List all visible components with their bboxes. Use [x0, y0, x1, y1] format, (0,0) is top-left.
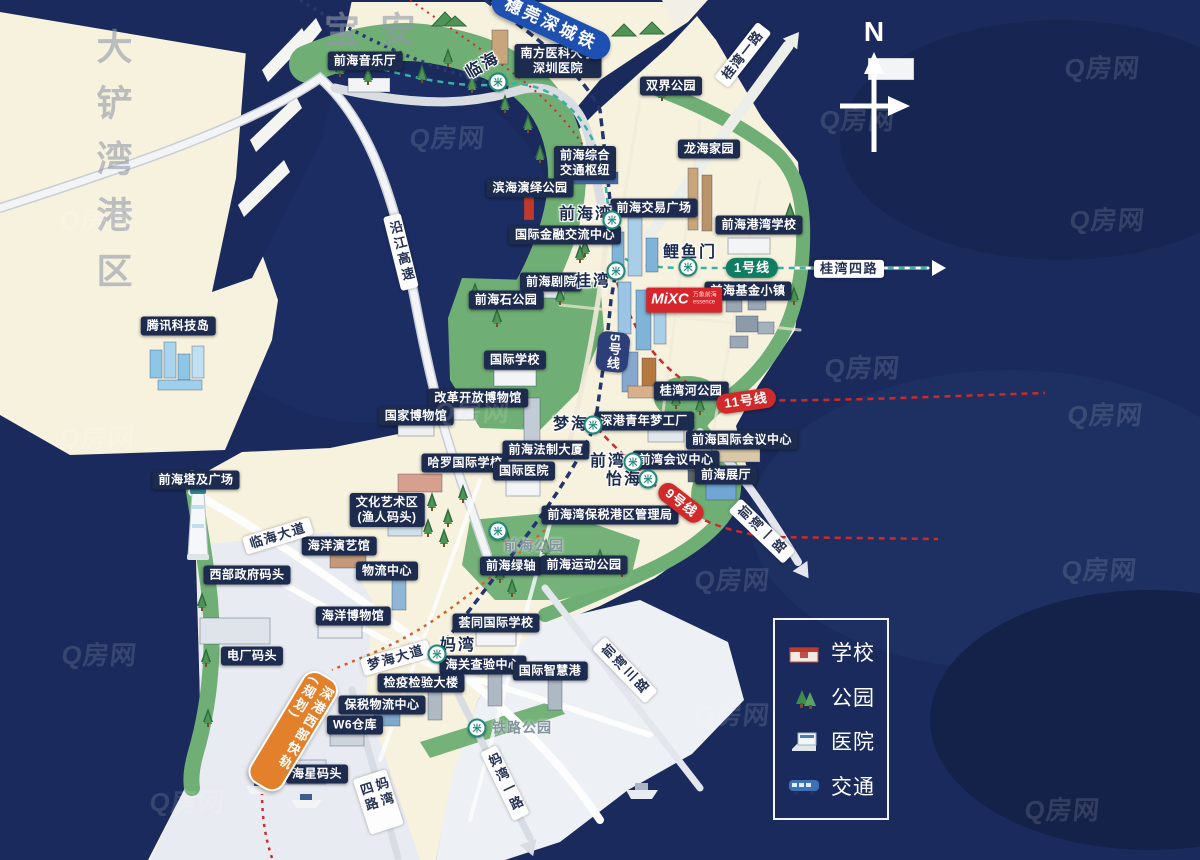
- metro-station-icon: 米: [603, 211, 622, 230]
- compass-n-label: N: [834, 16, 914, 48]
- poi-label: 国家博物馆: [379, 407, 454, 426]
- watermark: Q房网: [148, 782, 227, 819]
- poi-label: 电厂码头: [221, 647, 283, 666]
- mixc-subtext: 万象前海 essence: [693, 293, 717, 307]
- metro-station-icon: 米: [428, 645, 447, 664]
- metro-station-icon: 米: [639, 470, 658, 489]
- road-label: 桂湾四路: [814, 260, 884, 278]
- poi-label: 龙海家园: [678, 140, 740, 159]
- metro-station-icon: 米: [489, 522, 508, 541]
- road-label: 妈湾一路: [480, 745, 530, 821]
- watermark: Q房网: [1066, 395, 1145, 432]
- poi-label: 前海交易广场: [610, 199, 697, 218]
- poi-label: 前海塔及广场: [152, 471, 239, 490]
- metro-line-badge: 5号线: [595, 330, 631, 373]
- metro-station-icon: 米: [679, 258, 698, 277]
- poi-label: 海洋博物馆: [316, 607, 391, 626]
- poi-label: 国际智慧港: [513, 662, 588, 681]
- metro-station-icon: 米: [607, 262, 626, 281]
- road-label: 前湾一路: [728, 498, 795, 564]
- road-label: 梦海大道: [360, 640, 432, 677]
- metro-station-icon: 米: [624, 453, 643, 472]
- project-badge-mixc: MiXC万象前海 essence: [646, 288, 722, 313]
- metro-line-badge: 1号线: [726, 258, 778, 278]
- poi-label: 前海音乐厅: [328, 52, 403, 71]
- poi-label: 深港青年梦工厂: [594, 412, 694, 431]
- road-label: 桂湾一路: [714, 22, 771, 88]
- poi-label: 腾讯科技岛: [141, 317, 216, 336]
- poi-label: 国际医院: [493, 462, 555, 481]
- transit-icon: [787, 773, 821, 799]
- watermark: Q房网: [693, 560, 772, 597]
- park-label: 铁路公园: [492, 719, 552, 737]
- park-label: 前海公园: [504, 537, 564, 555]
- poi-label: 物流中心: [356, 562, 418, 581]
- poi-label: 前海法制大厦: [502, 441, 589, 460]
- poi-label: 保税物流中心: [338, 696, 425, 715]
- mixc-logo: MiXC: [651, 291, 689, 310]
- legend-item-label: 公园: [831, 682, 875, 712]
- legend-item: 交通: [775, 771, 887, 801]
- poi-label: 前海石公园: [469, 291, 544, 310]
- poi-label: 前海国际会议中心: [686, 431, 798, 450]
- poi-label: 双界公园: [640, 77, 702, 96]
- poi-label: 滨海演绎公园: [486, 179, 573, 198]
- compass-cross-icon: [834, 48, 914, 160]
- watermark: Q房网: [1023, 790, 1102, 827]
- legend-item-label: 学校: [831, 637, 875, 667]
- poi-label: 前海港湾学校: [715, 216, 802, 235]
- watermark: Q房网: [1068, 200, 1147, 237]
- road-label: 沿江高速: [383, 213, 419, 291]
- watermark: Q房网: [693, 695, 772, 732]
- poi-label: 西部政府码头: [203, 566, 290, 585]
- legend-item: 学校: [775, 637, 887, 667]
- poi-label: 前海绿轴: [480, 557, 542, 576]
- watermark: Q房网: [823, 348, 902, 385]
- poi-label: 检疫检验大楼: [377, 674, 464, 693]
- area-label: 大铲湾港区: [89, 22, 136, 314]
- station-label: 怡海: [606, 470, 642, 490]
- watermark: Q房网: [1060, 550, 1139, 587]
- area-label: 宝安: [324, 8, 436, 53]
- poi-label: 前海剧院: [520, 273, 582, 292]
- poi-label: 海洋演艺馆: [302, 537, 377, 556]
- legend-item-label: 医院: [831, 726, 875, 756]
- metro-station-icon: 米: [489, 73, 508, 92]
- poi-label: 海星码头: [286, 765, 348, 784]
- watermark: Q房网: [58, 418, 137, 455]
- poi-label: 前海综合 交通枢纽: [554, 146, 616, 180]
- poi-label: W6仓库: [327, 716, 383, 735]
- poi-label: 前海运动公园: [540, 556, 627, 575]
- legend-item: 公园: [775, 682, 887, 712]
- poi-label: 前海展厅: [695, 466, 757, 485]
- hospital-icon: [787, 728, 821, 754]
- road-label: 妈湾四路: [353, 769, 404, 835]
- school-icon: [787, 639, 821, 665]
- station-label: 前湾: [590, 452, 626, 472]
- poi-label: 国际金融交流中心: [509, 226, 621, 245]
- legend-item: 医院: [775, 726, 887, 756]
- poi-label: 改革开放博物馆: [428, 389, 528, 408]
- poi-label: 前海湾保税港区管理局: [541, 506, 678, 525]
- poi-label: 荟同国际学校: [452, 614, 539, 633]
- watermark: Q房网: [60, 635, 139, 672]
- compass: N: [834, 16, 914, 165]
- watermark: Q房网: [408, 118, 487, 155]
- legend: 学校公园医院交通: [773, 618, 889, 820]
- qianhai-map: 宝安大铲湾港区前海音乐厅南方医科大学 深圳医院双界公园龙海家园前海综合 交通枢纽…: [0, 0, 1200, 860]
- legend-item-label: 交通: [831, 771, 875, 801]
- metro-station-icon: 米: [584, 416, 603, 435]
- road-label: 前湾三路: [592, 636, 658, 703]
- watermark: Q房网: [1063, 48, 1142, 85]
- poi-label: 国际学校: [484, 351, 546, 370]
- metro-station-icon: 米: [468, 719, 487, 738]
- park-icon: [787, 684, 821, 710]
- poi-label: 文化艺术区 (渔人码头): [350, 493, 425, 527]
- station-label: 桂湾: [575, 272, 611, 292]
